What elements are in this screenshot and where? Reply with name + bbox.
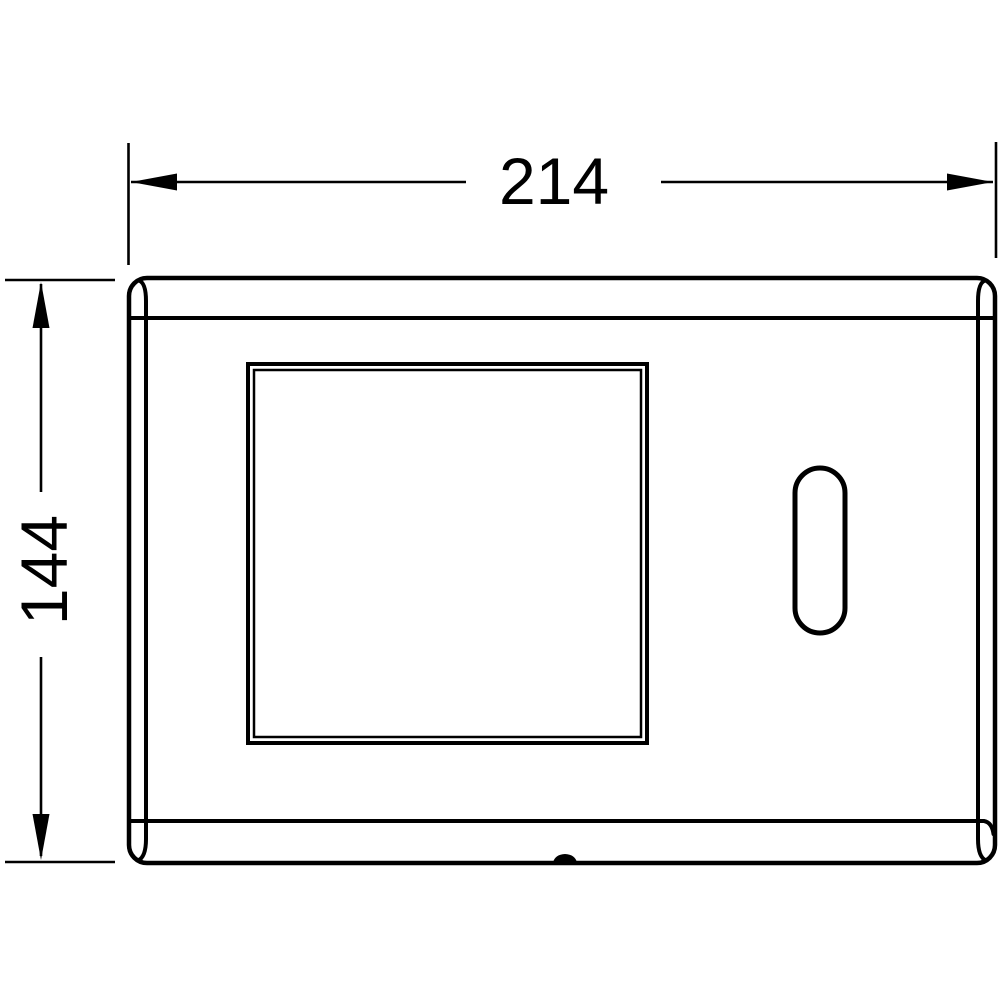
width-dimension: 214 bbox=[129, 142, 997, 265]
bevel-edge-left bbox=[138, 281, 146, 861]
arrowhead-up-icon bbox=[33, 282, 50, 328]
height-dimension: 144 bbox=[5, 280, 115, 862]
flush-plate bbox=[129, 278, 995, 863]
width-dimension-label: 214 bbox=[499, 144, 609, 218]
arrowhead-down-icon bbox=[33, 814, 50, 860]
bottom-center-notch bbox=[553, 854, 577, 863]
sensor-window-inner bbox=[254, 370, 641, 737]
technical-drawing-page: 214 144 bbox=[0, 0, 1000, 1000]
bevel-edge-bottom bbox=[131, 821, 994, 834]
height-dimension-label: 144 bbox=[7, 515, 81, 625]
sensor-window-outer bbox=[248, 364, 647, 743]
arrowhead-left-icon bbox=[131, 174, 177, 191]
technical-drawing-canvas: 214 144 bbox=[0, 0, 1000, 1000]
arrowhead-right-icon bbox=[947, 174, 993, 191]
sensor-opening bbox=[795, 468, 845, 633]
bevel-edge-right bbox=[978, 281, 986, 861]
